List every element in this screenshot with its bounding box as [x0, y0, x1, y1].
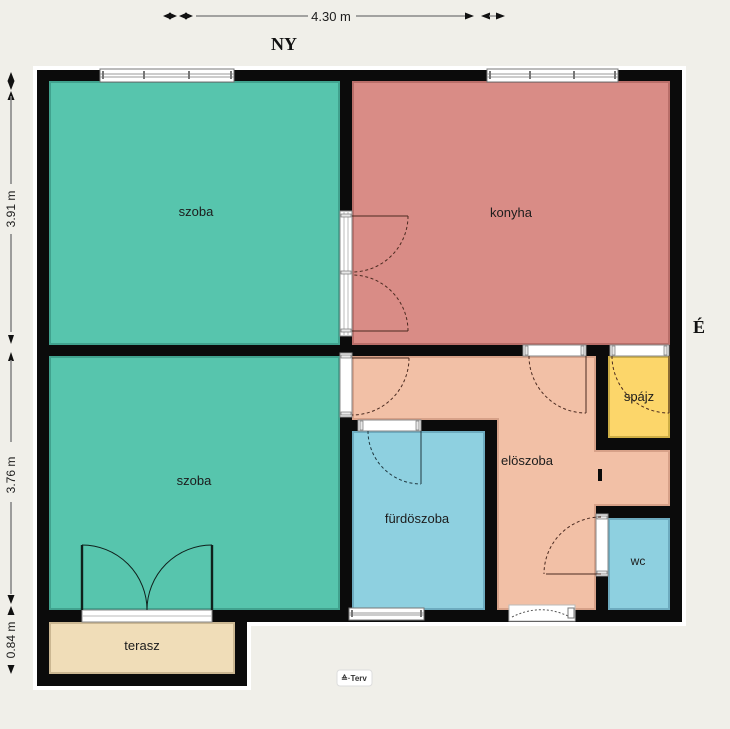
svg-text:4.30 m: 4.30 m: [311, 9, 351, 24]
svg-text:3.76 m: 3.76 m: [4, 457, 18, 494]
svg-text:É: É: [693, 316, 705, 337]
svg-text:NY: NY: [271, 34, 297, 54]
svg-text:fürdöszoba: fürdöszoba: [385, 511, 450, 526]
svg-text:spájz: spájz: [624, 389, 654, 404]
svg-text:szoba: szoba: [179, 204, 214, 219]
svg-text:terasz: terasz: [124, 638, 159, 653]
svg-text:3.91 m: 3.91 m: [4, 191, 18, 228]
svg-text:konyha: konyha: [490, 205, 533, 220]
svg-text:szoba: szoba: [177, 473, 212, 488]
svg-text:0.84 m: 0.84 m: [4, 622, 18, 659]
svg-text:≙·Terv: ≙·Terv: [341, 674, 367, 683]
svg-text:wc: wc: [630, 554, 646, 568]
svg-text:elöszoba: elöszoba: [501, 453, 554, 468]
